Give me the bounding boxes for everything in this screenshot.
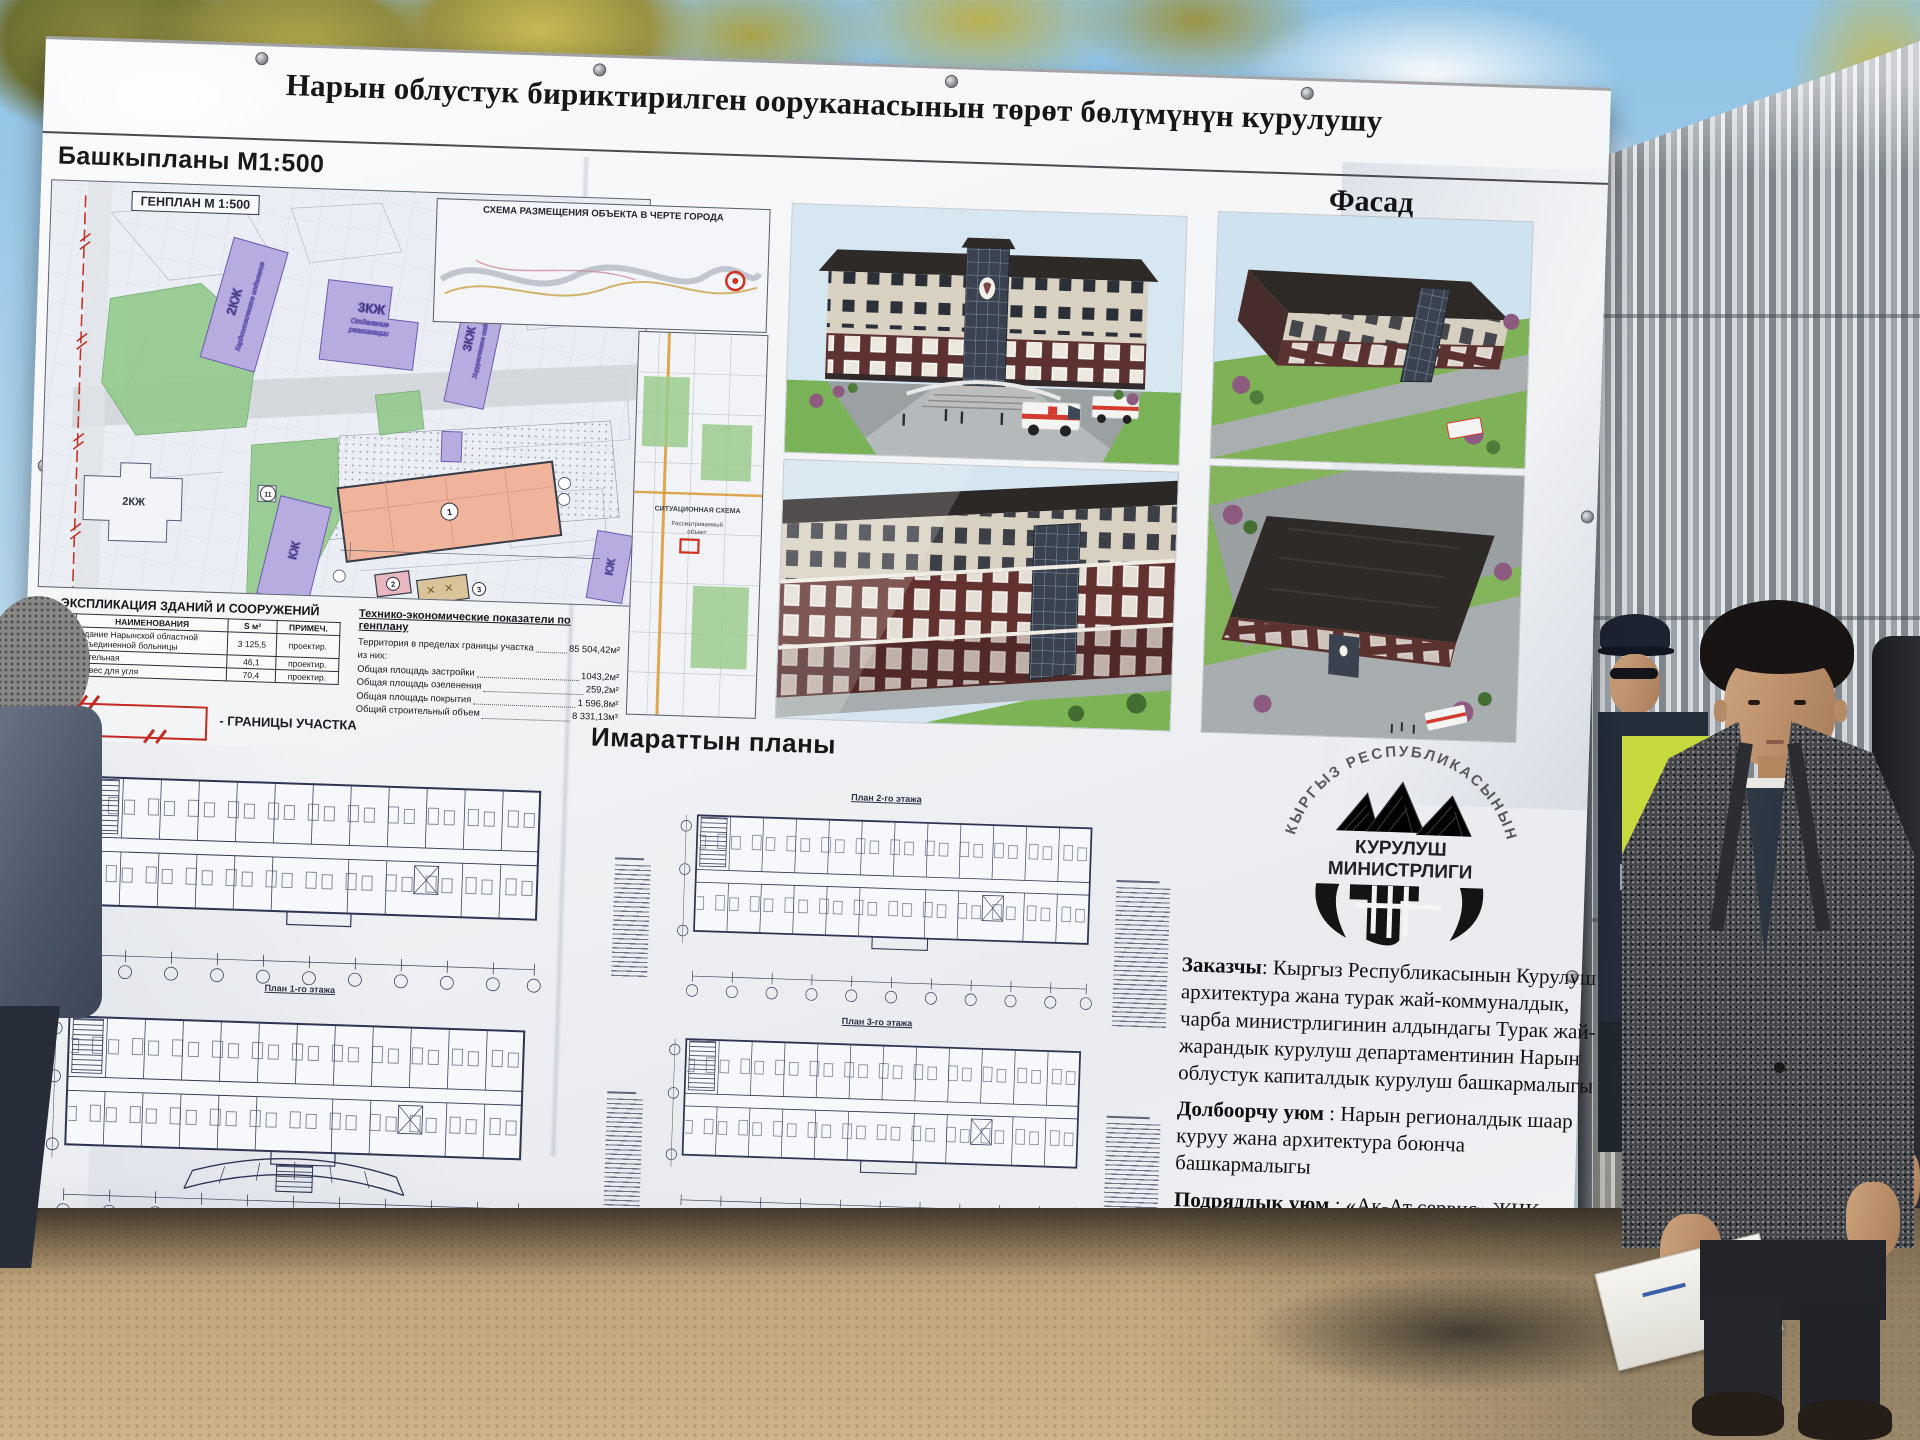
floor-plan-right-top — [674, 798, 1107, 1018]
floor-plan-left-top — [59, 758, 558, 1002]
map-house-label: 2КЖ — [122, 496, 145, 509]
map-marker-11: 11 — [264, 491, 272, 498]
tep-title: Технико-экономические показатели по генп… — [358, 608, 621, 641]
room-legend-list — [611, 864, 651, 977]
grommet — [1581, 510, 1594, 523]
construction-info-banner: Нарын облустук бириктирилген ооруканасын… — [5, 36, 1611, 1322]
room-legend-list — [604, 1098, 644, 1207]
genplan-heading: Башкыпланы М1:500 — [58, 141, 325, 179]
rendering-aerial-view — [1202, 466, 1525, 742]
logo-line2: МИНИСТРЛИГИ — [1327, 858, 1472, 884]
rendering-front-view — [785, 204, 1187, 465]
genplan-map-label: ГЕНПЛАН М 1:500 — [131, 191, 259, 215]
plans-heading: Имараттын планы — [591, 721, 837, 760]
logo-line1: КУРУЛУШ — [1355, 837, 1447, 861]
grommet — [593, 63, 606, 76]
cell: 70,4 — [226, 668, 275, 683]
info-row-designer: Долбоорчу уюм : Нарын регионалдык шаар к… — [1175, 1095, 1597, 1190]
ministry-logo: КЫРГЫЗ РЕСПУБЛИКАСЫНЫН КУРУЛУШ МИНИСТРЛИ… — [1262, 732, 1539, 957]
photo-scene: { "banner": { "title": "Нарын облустук б… — [0, 0, 1920, 1440]
man-eye — [1748, 700, 1760, 705]
situational-map: СИТУАЦИОННАЯ СХЕМА Рассматриваемый объек… — [626, 331, 769, 719]
man-mouth — [1766, 740, 1784, 744]
boundary-legend: - ГРАНИЦЫ УЧАСТКА — [219, 713, 357, 733]
banner-ground-shadow — [0, 1208, 1720, 1278]
situational-map-drawing: СИТУАЦИОННАЯ СХЕМА Рассматриваемый объек… — [627, 332, 768, 718]
police-sunglasses — [1610, 668, 1658, 679]
sit-object-label-2: объект — [687, 530, 707, 537]
tep-block: Технико-экономические показатели по генп… — [356, 608, 621, 725]
coat-button — [1774, 1062, 1785, 1073]
mountains-icon — [1336, 780, 1473, 836]
cell: проектир. — [276, 633, 340, 658]
sit-object-label-1: Рассматриваемый — [671, 520, 723, 529]
sit-schema-title: СИТУАЦИОННАЯ СХЕМА — [655, 505, 741, 515]
man-shoe — [1692, 1392, 1784, 1436]
floor-plan-label: План 2-го этажа — [851, 792, 922, 804]
ministry-emblem — [1314, 884, 1483, 948]
man-ear — [1834, 700, 1847, 722]
police-face — [1610, 654, 1660, 714]
rendering-side-view — [776, 460, 1178, 731]
man-eye — [1794, 700, 1806, 705]
grommet — [945, 75, 958, 88]
floor-plan-label: План 3-го этажа — [842, 1016, 913, 1028]
rendering-aerial-right — [1211, 212, 1533, 468]
city-location-schema: СХЕМА РАЗМЕЩЕНИЯ ОБЪЕКТА В ЧЕРТЕ ГОРОДА — [433, 198, 771, 333]
man-shoe — [1798, 1400, 1892, 1440]
grommet — [1301, 87, 1314, 100]
floor-plan-label: План 1-го этажа — [264, 983, 335, 995]
man-fringe — [1720, 636, 1840, 674]
man-leg — [1800, 1300, 1880, 1416]
schema-drawing — [434, 219, 767, 330]
info-row-customer: Заказчы: Кыргыз Республикасынын Курулуш … — [1178, 951, 1602, 1099]
cell: 3 125,5 — [227, 632, 277, 657]
cell: проектир. — [275, 669, 338, 684]
room-legend-list — [1112, 887, 1171, 1029]
man-ear — [1714, 700, 1727, 722]
grommet — [255, 52, 268, 65]
left-person-jacket — [0, 706, 102, 1018]
